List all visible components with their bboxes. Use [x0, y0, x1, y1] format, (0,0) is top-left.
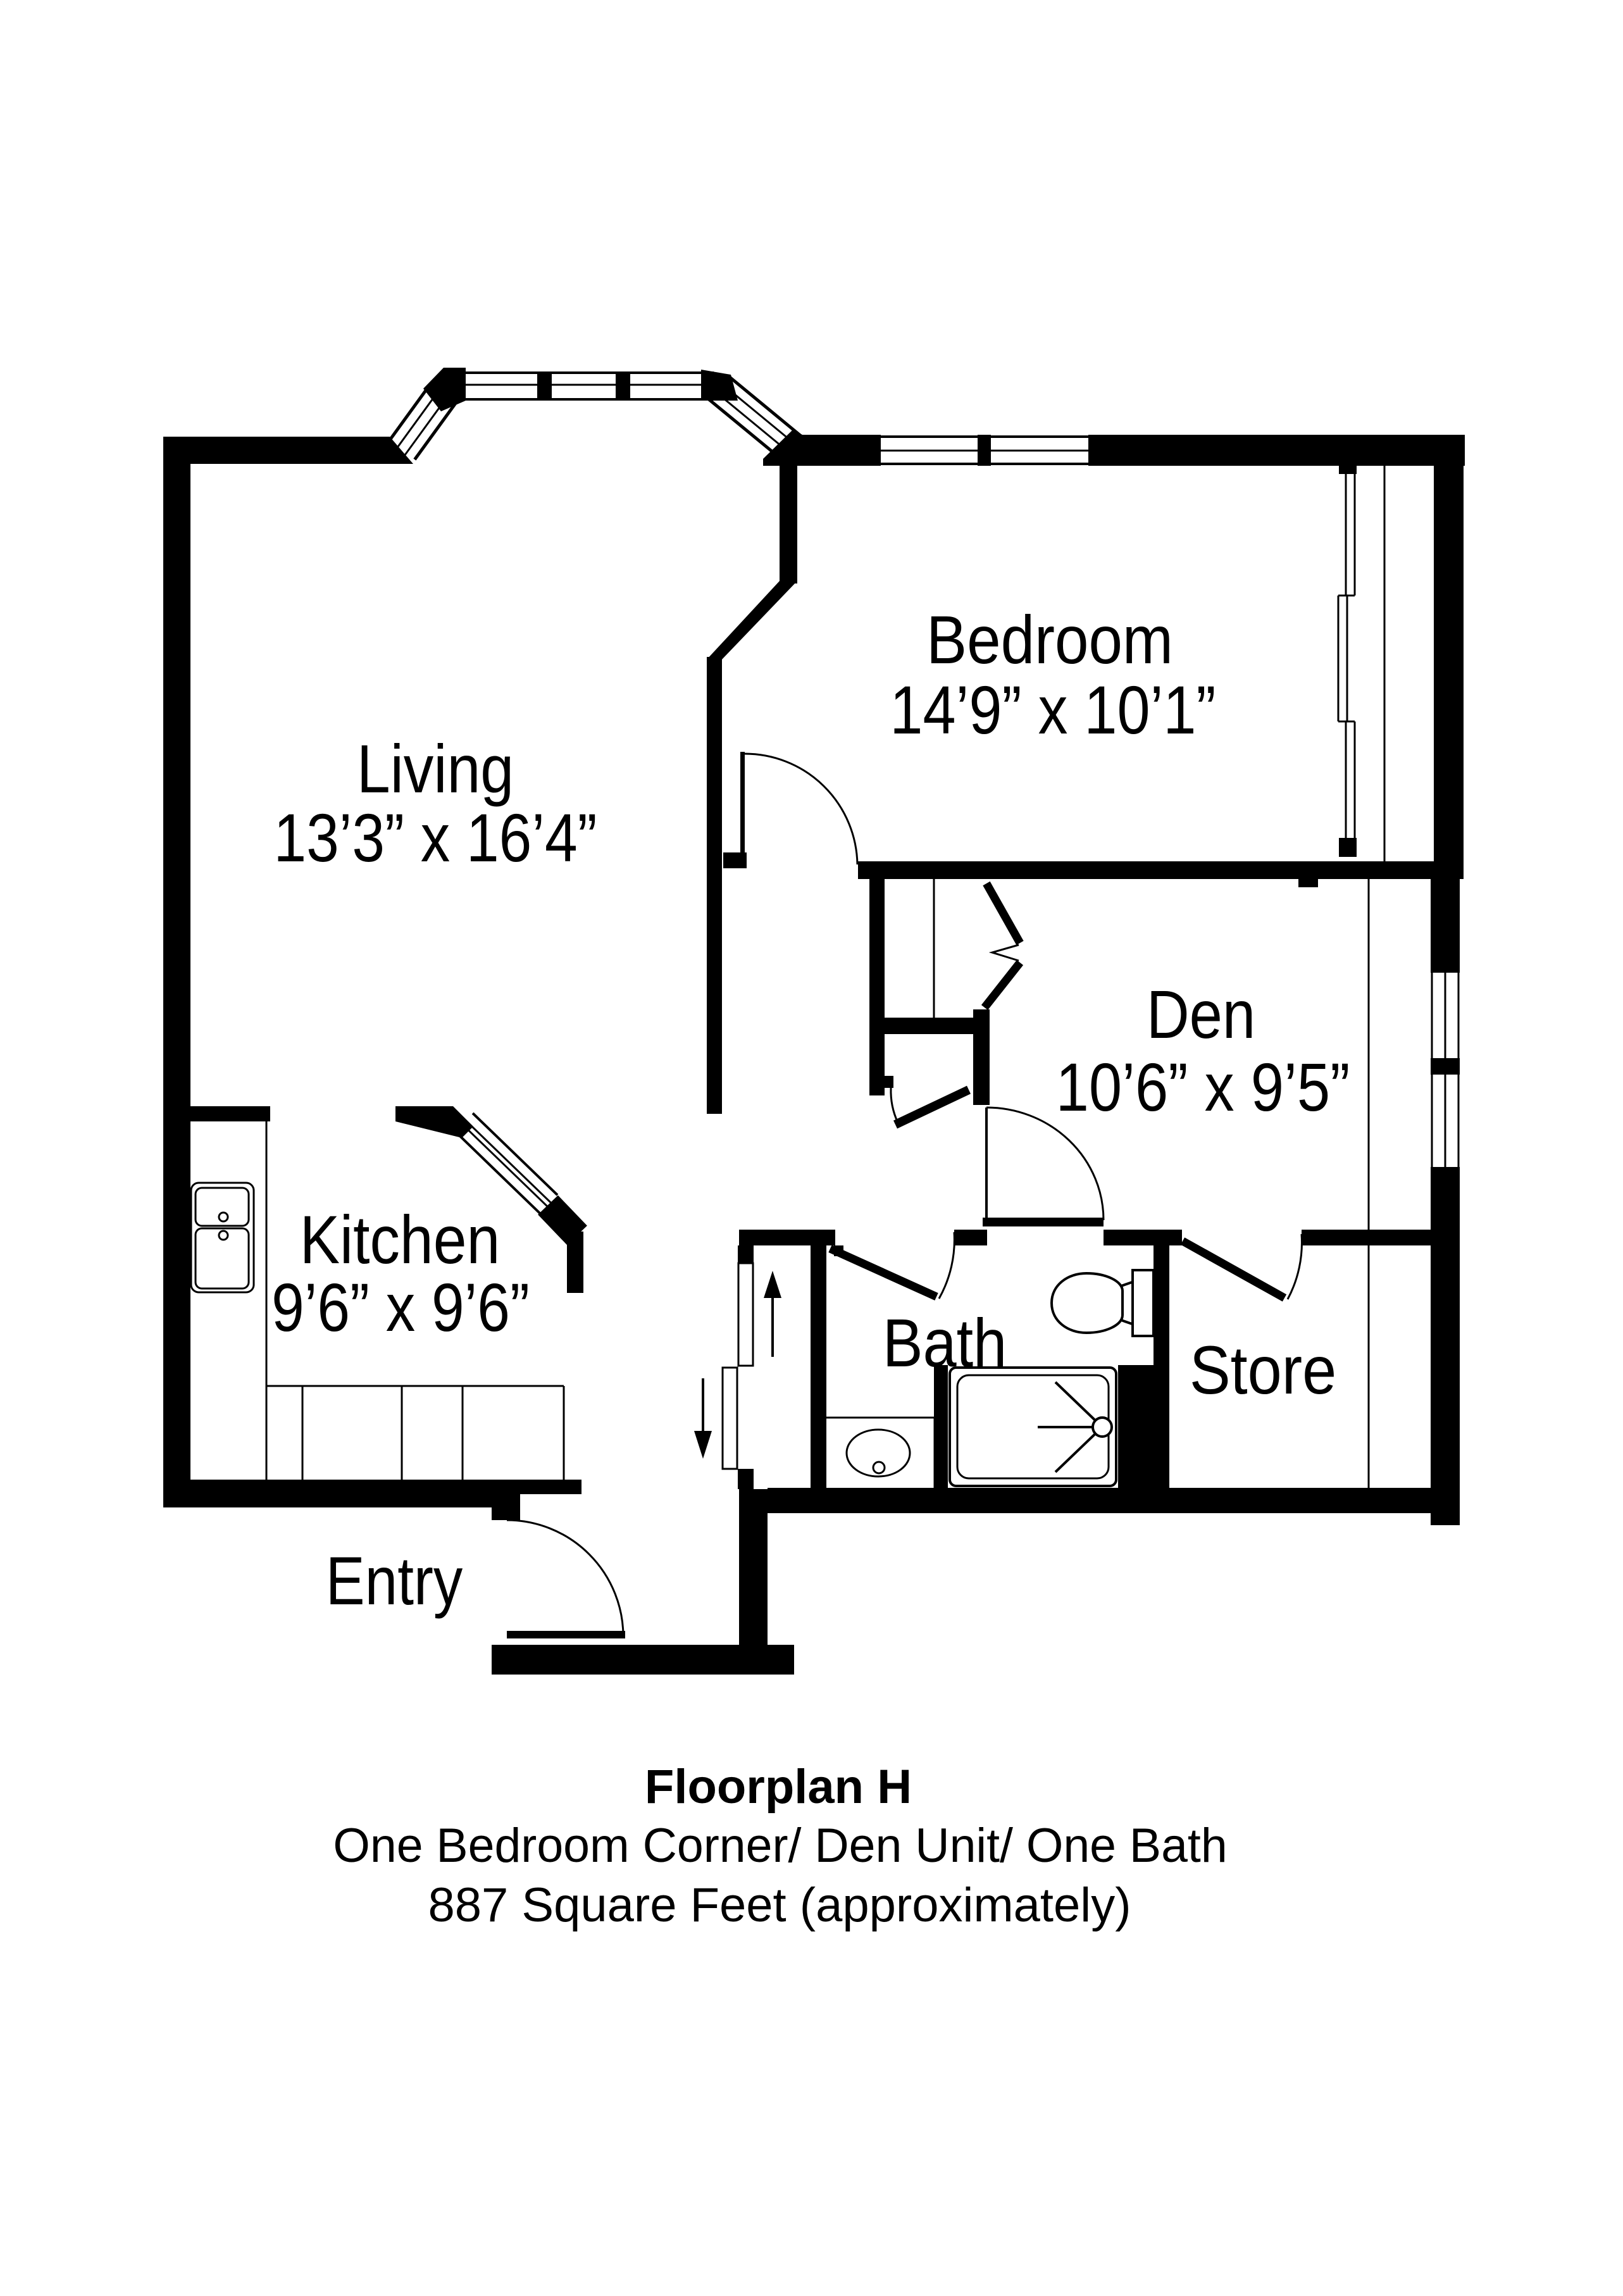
svg-text:Floorplan H: Floorplan H — [645, 1760, 912, 1814]
svg-text:9’6” x 9’6”: 9’6” x 9’6” — [271, 1270, 530, 1345]
svg-text:13’3” x 16’4”: 13’3” x 16’4” — [273, 800, 597, 876]
svg-text:887 Square Feet (approximately: 887 Square Feet (approximately) — [428, 1878, 1131, 1932]
svg-text:Bedroom: Bedroom — [926, 601, 1173, 678]
svg-text:14’9” x 10’1”: 14’9” x 10’1” — [890, 673, 1216, 749]
svg-text:Bath: Bath — [883, 1305, 1007, 1382]
svg-text:Store: Store — [1190, 1332, 1336, 1408]
svg-text:Kitchen: Kitchen — [300, 1201, 501, 1278]
svg-text:Entry: Entry — [326, 1543, 463, 1619]
svg-text:10’6” x 9’5”: 10’6” x 9’5” — [1056, 1049, 1350, 1126]
svg-text:Den: Den — [1147, 976, 1255, 1053]
svg-text:One Bedroom Corner/ Den Unit/: One Bedroom Corner/ Den Unit/ One Bath — [333, 1819, 1227, 1873]
svg-text:Living: Living — [357, 730, 514, 807]
